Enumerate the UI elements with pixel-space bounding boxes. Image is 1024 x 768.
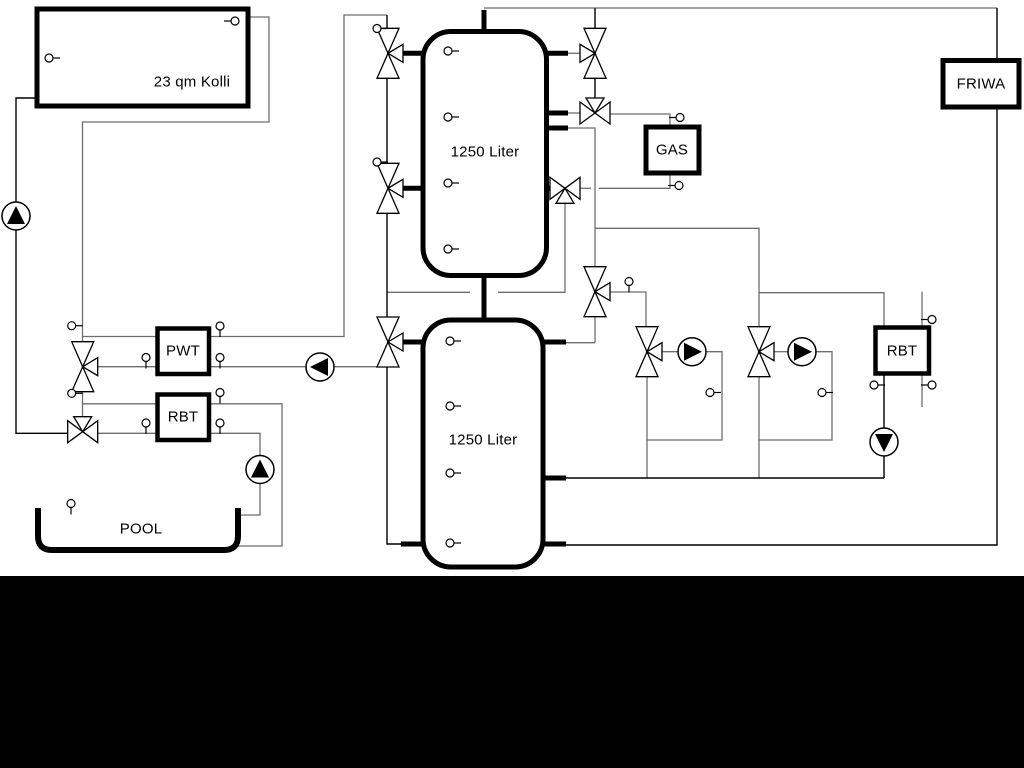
- three-way-valve: [72, 342, 98, 392]
- three-way-valve: [377, 317, 403, 367]
- three-way-valve: [68, 417, 98, 443]
- pwt-label: PWT: [166, 343, 200, 360]
- pipe: [599, 174, 670, 189]
- solar-pump: [2, 202, 30, 230]
- rbt-left-label: RBT: [168, 409, 199, 426]
- temp-sensor: [142, 419, 150, 434]
- temp-sensor: [625, 278, 633, 293]
- circuit-pump-1: [678, 338, 706, 366]
- rbt-right-label: RBT: [887, 343, 918, 360]
- three-way-valve: [748, 327, 774, 377]
- temp-sensor: [706, 389, 721, 397]
- temp-sensor: [921, 316, 936, 324]
- temp-sensor: [669, 114, 684, 122]
- temp-sensor: [67, 500, 75, 515]
- temp-sensor: [216, 322, 224, 337]
- pipe: [16, 98, 68, 433]
- pwt-pump: [306, 353, 334, 381]
- temp-sensor: [216, 419, 224, 434]
- black-footer-band: [0, 576, 1024, 768]
- three-way-valve: [377, 163, 403, 213]
- friwa-label: FRIWA: [957, 76, 1006, 93]
- tank-bottom-label: 1250 Liter: [449, 432, 518, 449]
- temp-sensor: [818, 389, 833, 397]
- schematic-stage: 23 qm Kolli 1250 Liter 1250 Liter GAS FR…: [0, 0, 1024, 768]
- three-way-valve: [636, 327, 662, 377]
- pipe: [387, 355, 401, 545]
- solar-collector-box: [37, 9, 248, 106]
- three-way-valve: [550, 177, 580, 203]
- pipe: [595, 228, 759, 337]
- pipe: [97, 433, 260, 515]
- pipe: [566, 107, 997, 545]
- temp-sensor: [870, 381, 885, 389]
- pool-pump: [246, 456, 274, 484]
- rbt-pump: [870, 428, 898, 456]
- collector-label: 23 qm Kolli: [154, 74, 230, 91]
- three-way-valve: [580, 98, 610, 124]
- pool-label: POOL: [120, 521, 162, 538]
- temp-sensor: [921, 381, 936, 389]
- three-way-valve: [584, 267, 610, 317]
- pipe: [759, 293, 884, 327]
- three-way-valve: [377, 28, 403, 78]
- three-way-valve: [580, 28, 606, 78]
- circuit-pump-2: [788, 338, 816, 366]
- temp-sensor: [68, 322, 83, 330]
- tank-top-label: 1250 Liter: [451, 144, 520, 161]
- temp-sensor: [216, 389, 224, 404]
- gas-label: GAS: [656, 142, 688, 159]
